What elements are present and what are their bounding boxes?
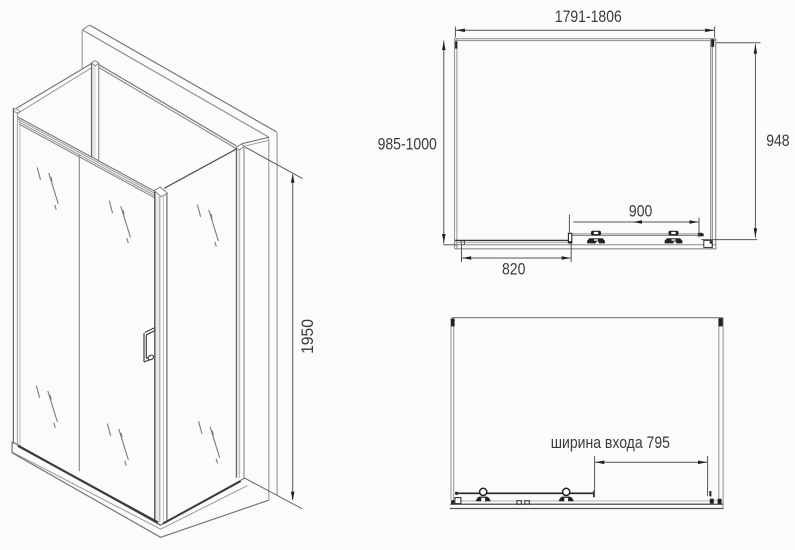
svg-text:1950: 1950 — [299, 319, 317, 354]
svg-text:1791-1806: 1791-1806 — [555, 8, 622, 26]
svg-text:985-1000: 985-1000 — [378, 135, 437, 153]
svg-text:820: 820 — [502, 260, 525, 278]
svg-text:948: 948 — [766, 132, 789, 150]
svg-text:900: 900 — [629, 203, 652, 221]
svg-text:ширина входа 795: ширина входа 795 — [551, 434, 670, 452]
